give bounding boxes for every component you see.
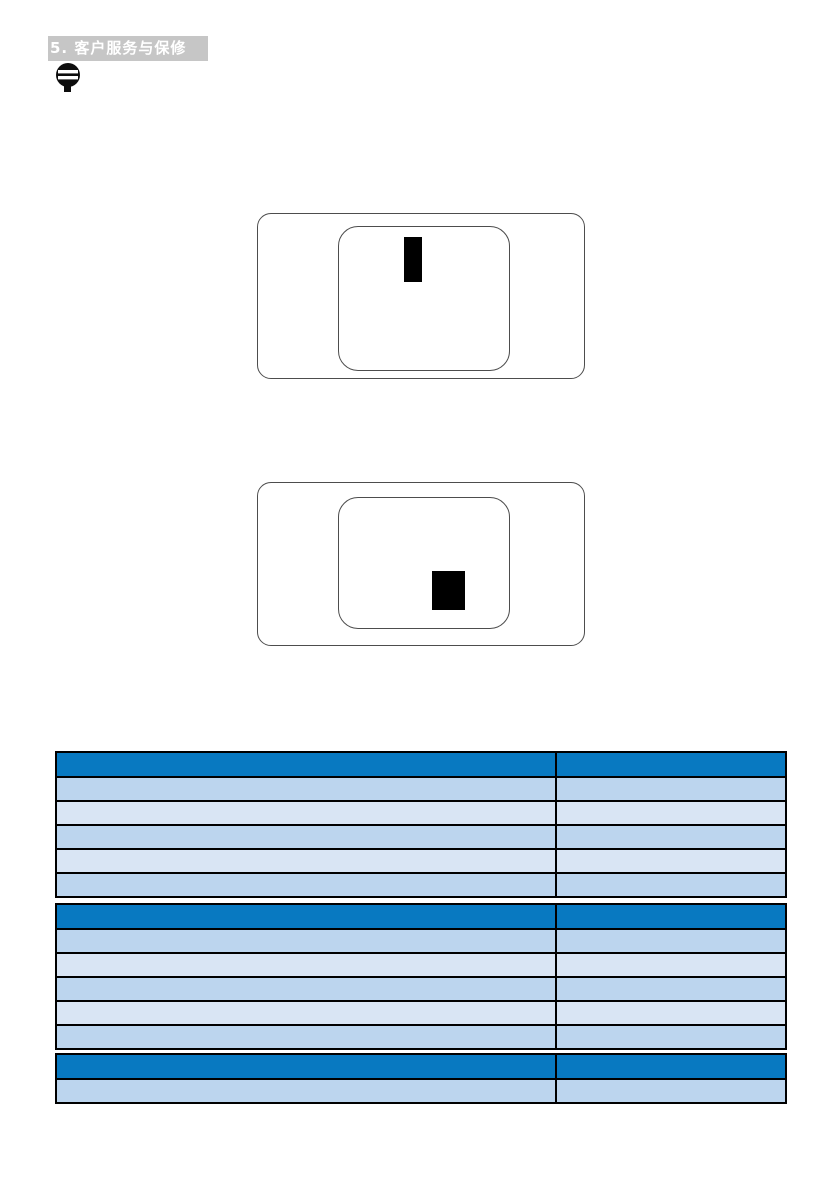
table-cell xyxy=(56,977,556,1001)
table-header-cell xyxy=(56,904,556,929)
table-row xyxy=(56,1025,786,1049)
defect-table-2 xyxy=(55,903,787,1050)
table-row xyxy=(56,1079,786,1103)
table-cell xyxy=(56,1025,556,1049)
section-title: 5. 客户服务与保修 xyxy=(50,39,186,57)
defect-table-3 xyxy=(55,1053,787,1104)
diagram-inner-panel xyxy=(338,226,510,371)
table-cell xyxy=(556,801,786,825)
defect-pixel-mark xyxy=(432,571,465,610)
table-cell xyxy=(56,929,556,953)
table-row xyxy=(56,849,786,873)
table-header-cell xyxy=(556,1054,786,1079)
table-cell xyxy=(56,777,556,801)
table-cell xyxy=(556,1025,786,1049)
table-header-row xyxy=(56,1054,786,1079)
note-icon xyxy=(55,62,82,93)
table-cell xyxy=(556,1001,786,1025)
table-header-cell xyxy=(56,752,556,777)
pixel-defect-diagram-bottom xyxy=(257,482,585,646)
table-row xyxy=(56,825,786,849)
table-cell xyxy=(556,873,786,897)
table-row xyxy=(56,1001,786,1025)
document-page: 5. 客户服务与保修 xyxy=(0,0,839,1191)
table-cell xyxy=(556,849,786,873)
table-cell xyxy=(556,825,786,849)
table-cell xyxy=(56,873,556,897)
table-header-cell xyxy=(556,752,786,777)
table-row xyxy=(56,873,786,897)
defect-pixel-mark xyxy=(404,237,422,282)
table-header-row xyxy=(56,752,786,777)
table-header-row xyxy=(56,904,786,929)
table-row xyxy=(56,953,786,977)
table-cell xyxy=(556,953,786,977)
table-cell xyxy=(56,1001,556,1025)
table-cell xyxy=(56,1079,556,1103)
table-cell xyxy=(56,849,556,873)
table-cell xyxy=(56,953,556,977)
pixel-defect-diagram-top xyxy=(257,213,585,379)
table-row xyxy=(56,929,786,953)
note-icon-glyph xyxy=(55,62,82,93)
table-row xyxy=(56,777,786,801)
table-cell xyxy=(556,929,786,953)
table-cell xyxy=(556,777,786,801)
table-cell xyxy=(56,801,556,825)
table-cell xyxy=(556,977,786,1001)
table-cell xyxy=(56,825,556,849)
table-header-cell xyxy=(56,1054,556,1079)
defect-table-1 xyxy=(55,751,787,898)
table-row xyxy=(56,801,786,825)
diagram-inner-panel xyxy=(338,497,510,629)
section-title-bar: 5. 客户服务与保修 xyxy=(48,36,208,61)
table-cell xyxy=(556,1079,786,1103)
table-header-cell xyxy=(556,904,786,929)
table-row xyxy=(56,977,786,1001)
